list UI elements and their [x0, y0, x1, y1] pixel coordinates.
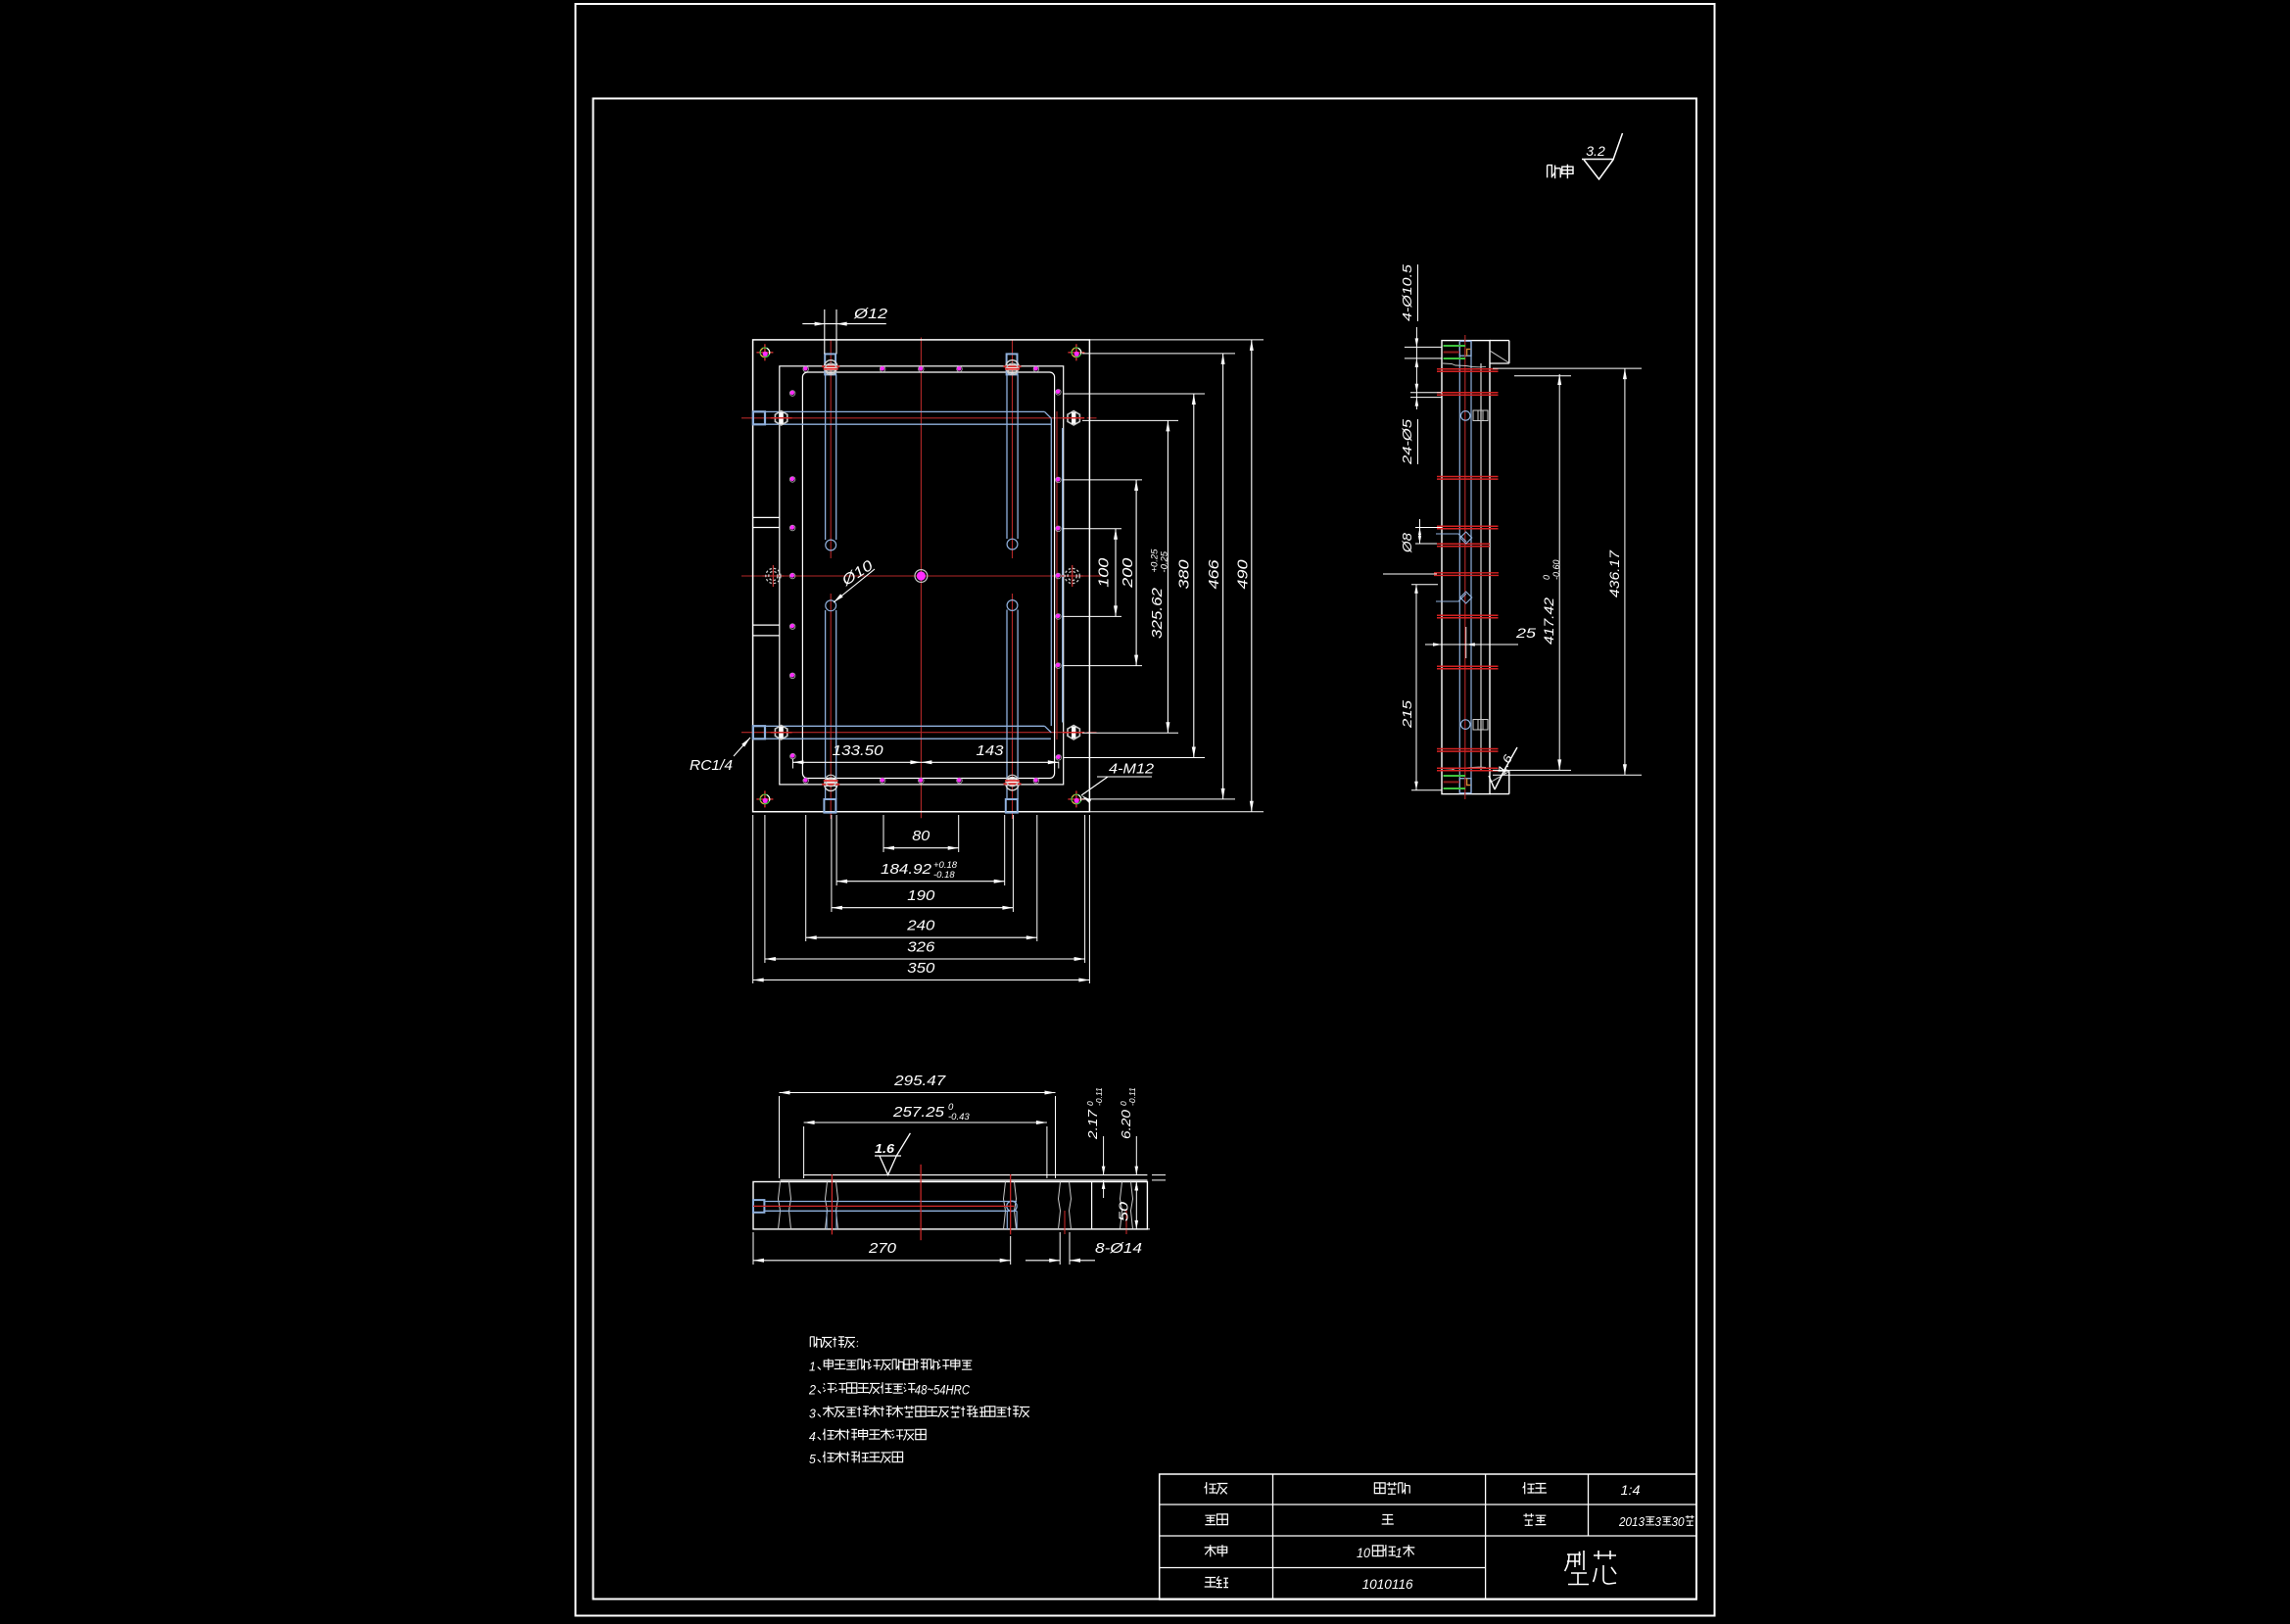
- svg-text:Ø8: Ø8: [1400, 532, 1414, 553]
- svg-text:2.17: 2.17: [1086, 1109, 1100, 1141]
- svg-text:326: 326: [907, 939, 935, 956]
- svg-text:-0.25: -0.25: [1160, 550, 1170, 572]
- svg-text:1:4: 1:4: [1621, 1483, 1641, 1498]
- svg-text:4-Ø10.5: 4-Ø10.5: [1400, 263, 1414, 321]
- svg-text:Ø12: Ø12: [853, 306, 888, 322]
- svg-text:133.50: 133.50: [833, 742, 884, 759]
- svg-text:-0.11: -0.11: [1094, 1087, 1104, 1106]
- svg-text:-0.18: -0.18: [933, 870, 955, 881]
- svg-text:48~54HRC: 48~54HRC: [915, 1383, 970, 1398]
- svg-text:8-Ø14: 8-Ø14: [1095, 1240, 1142, 1257]
- svg-text:4: 4: [809, 1429, 816, 1444]
- svg-text:3: 3: [1655, 1515, 1662, 1529]
- svg-text:417.42: 417.42: [1542, 597, 1556, 645]
- svg-text:-0.43: -0.43: [948, 1112, 970, 1122]
- svg-text:30: 30: [1672, 1515, 1685, 1529]
- svg-text:-0.60: -0.60: [1551, 559, 1561, 580]
- svg-text:1010116: 1010116: [1362, 1577, 1413, 1592]
- svg-text:RC1/4: RC1/4: [690, 758, 733, 774]
- svg-text:200: 200: [1120, 557, 1136, 589]
- svg-text:295.47: 295.47: [893, 1073, 946, 1089]
- svg-text:6.20: 6.20: [1120, 1110, 1133, 1139]
- svg-text:2: 2: [808, 1383, 816, 1398]
- svg-text:1.6: 1.6: [875, 1142, 895, 1156]
- svg-text:25: 25: [1515, 625, 1537, 641]
- svg-text:3: 3: [809, 1407, 817, 1421]
- svg-text:50: 50: [1117, 1201, 1131, 1221]
- svg-text:240: 240: [906, 918, 935, 934]
- svg-text:5: 5: [809, 1452, 817, 1466]
- svg-text:490: 490: [1235, 559, 1252, 590]
- svg-text:380: 380: [1175, 559, 1192, 590]
- svg-text:325.62: 325.62: [1149, 587, 1166, 639]
- svg-text:3.2: 3.2: [1586, 143, 1605, 159]
- svg-text:270: 270: [868, 1240, 897, 1257]
- svg-text:-0.11: -0.11: [1127, 1087, 1137, 1106]
- svg-text:466: 466: [1206, 559, 1222, 590]
- svg-text:10: 10: [1357, 1546, 1370, 1560]
- svg-text:350: 350: [907, 960, 935, 977]
- svg-text:184.92: 184.92: [881, 861, 932, 878]
- svg-text:4-M12: 4-M12: [1109, 762, 1154, 778]
- svg-text:190: 190: [907, 887, 935, 904]
- svg-text:436.17: 436.17: [1607, 549, 1622, 597]
- svg-text:80: 80: [912, 828, 930, 844]
- svg-text:24-Ø5: 24-Ø5: [1400, 418, 1414, 465]
- svg-text:257.25: 257.25: [892, 1104, 945, 1121]
- svg-text:100: 100: [1095, 557, 1112, 588]
- svg-text:215: 215: [1400, 699, 1414, 729]
- svg-text:1: 1: [809, 1360, 816, 1374]
- svg-text:143: 143: [977, 742, 1005, 759]
- svg-text:1: 1: [1396, 1546, 1403, 1560]
- svg-text:2013: 2013: [1618, 1515, 1645, 1529]
- svg-text:0: 0: [1542, 575, 1551, 580]
